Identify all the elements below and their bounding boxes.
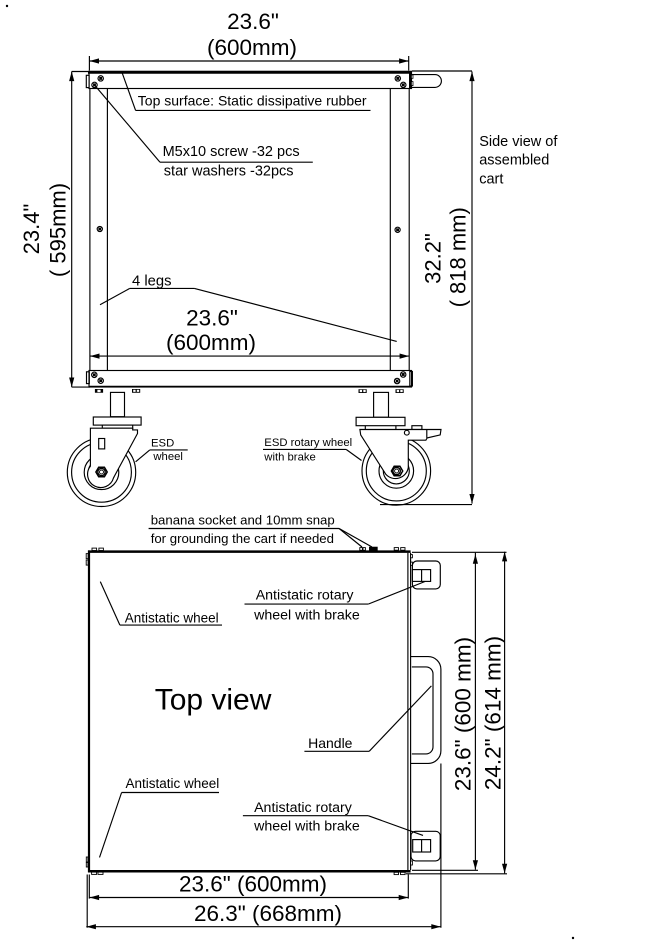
- svg-text:23.4": 23.4": [19, 204, 44, 255]
- svg-text:assembled: assembled: [479, 153, 549, 169]
- svg-text:Handle: Handle: [308, 735, 353, 751]
- svg-text:Antistatic rotary: Antistatic rotary: [254, 800, 353, 816]
- svg-text:ESD: ESD: [151, 437, 174, 449]
- svg-text:banana socket and 10mm snap: banana socket and 10mm snap: [151, 513, 335, 528]
- svg-text:wheel with brake: wheel with brake: [253, 607, 360, 623]
- svg-text:( 818 mm): ( 818 mm): [445, 207, 470, 307]
- svg-text:wheel: wheel: [152, 451, 183, 463]
- svg-text:Antistatic wheel: Antistatic wheel: [126, 776, 220, 791]
- svg-text:Antistatic rotary: Antistatic rotary: [256, 587, 355, 603]
- svg-text:23.6" (600 mm): 23.6" (600 mm): [450, 637, 475, 791]
- svg-text:wheel with brake: wheel with brake: [253, 819, 360, 835]
- svg-text:M5x10 screw -32 pcs: M5x10 screw -32 pcs: [163, 144, 300, 160]
- svg-text:(600mm): (600mm): [207, 35, 297, 60]
- svg-text:23.6": 23.6": [186, 306, 238, 331]
- svg-text:(600mm): (600mm): [166, 330, 256, 355]
- svg-text:23.6" (600mm): 23.6" (600mm): [179, 872, 327, 897]
- svg-text:with brake: with brake: [263, 452, 316, 464]
- svg-text:23.6": 23.6": [227, 9, 279, 34]
- svg-text:24.2" (614 mm): 24.2" (614 mm): [480, 636, 505, 790]
- svg-text:star washers -32pcs: star washers -32pcs: [164, 164, 294, 180]
- svg-text:Top view: Top view: [155, 684, 272, 717]
- svg-text:4 legs: 4 legs: [132, 273, 172, 289]
- svg-text:32.2": 32.2": [421, 233, 446, 284]
- svg-text:Antistatic wheel: Antistatic wheel: [125, 610, 219, 625]
- svg-text:for grounding the cart if need: for grounding the cart if needed: [151, 531, 334, 546]
- svg-text:Top surface: Static dissipativ: Top surface: Static dissipative rubber: [138, 92, 367, 108]
- svg-text:( 595mm): ( 595mm): [45, 183, 70, 277]
- svg-text:Side view of: Side view of: [479, 134, 558, 150]
- svg-text:26.3" (668mm): 26.3" (668mm): [194, 901, 342, 926]
- svg-text:ESD rotary wheel: ESD rotary wheel: [264, 437, 352, 449]
- svg-text:cart: cart: [479, 171, 503, 187]
